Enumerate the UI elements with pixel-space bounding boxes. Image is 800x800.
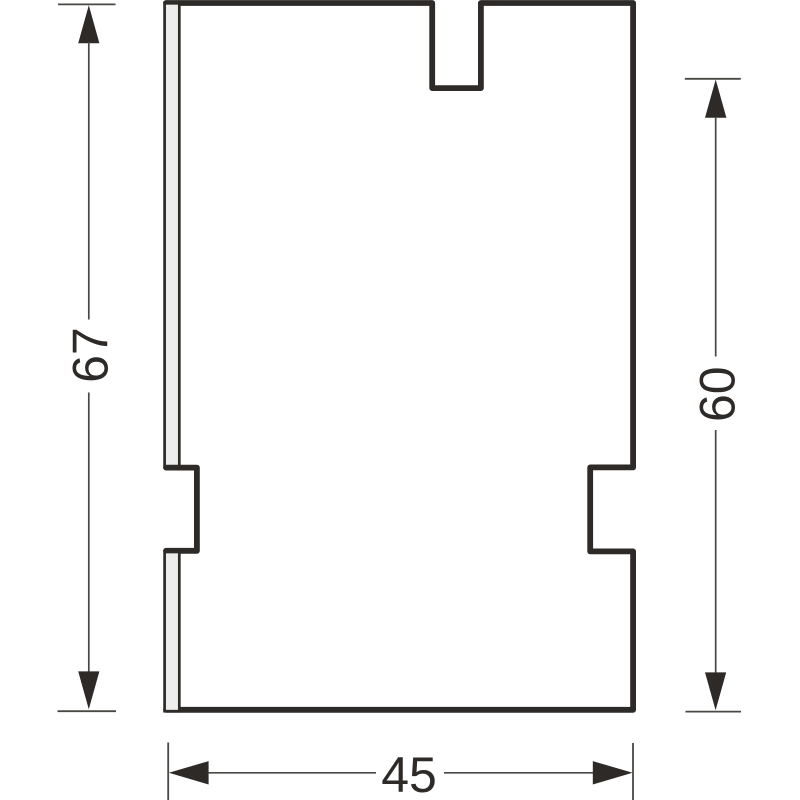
svg-text:67: 67 (62, 327, 118, 383)
svg-text:60: 60 (689, 366, 745, 422)
svg-text:45: 45 (381, 747, 437, 800)
